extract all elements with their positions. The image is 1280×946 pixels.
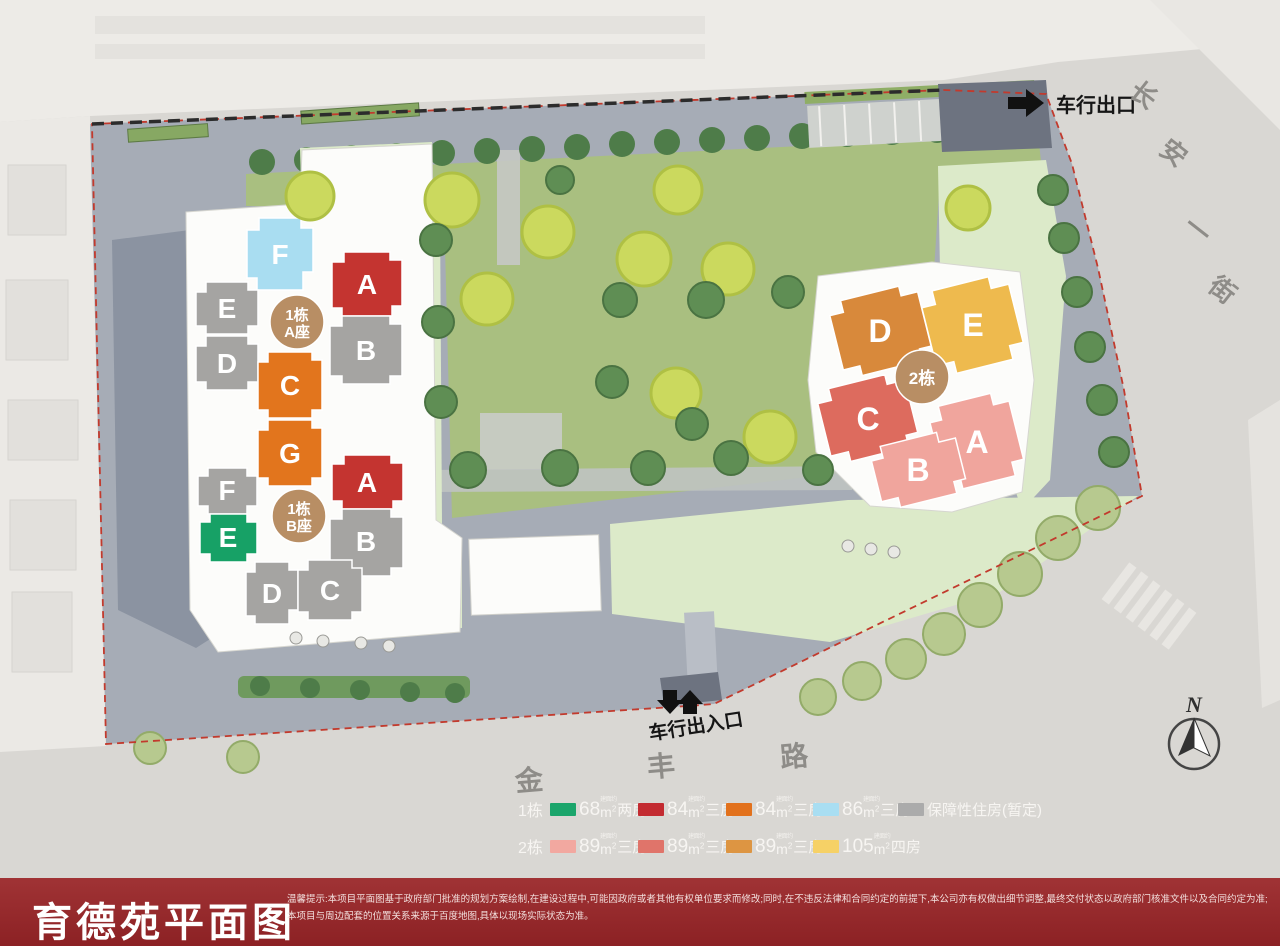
site-plan-page: { "map": { "exit_label": "车行出口", "entran… xyxy=(0,0,1280,946)
legend-swatch-icon xyxy=(638,840,664,853)
svg-text:金: 金 xyxy=(513,763,546,797)
building-1a-C-label: C xyxy=(280,370,300,401)
legend-item: 89 建面约m2 三房 xyxy=(638,836,726,857)
legend-swatch-icon xyxy=(726,803,752,816)
building-1a-E-label: E xyxy=(218,293,237,324)
building-2-E-label: E xyxy=(962,307,983,343)
building-1b-C-label: C xyxy=(320,575,340,606)
legend-swatch-icon xyxy=(813,803,839,816)
svg-text:1栋: 1栋 xyxy=(287,500,310,518)
legend-item: 68 建面约m2 两房 xyxy=(550,799,638,820)
building-2-C-label: C xyxy=(856,401,879,437)
legend-row-tower1: 1栋 68 建面约m2 两房 84 建面约m2 三房 84 建面约m2 三房 8… xyxy=(518,796,1042,822)
legend-item: 89 建面约m2 三房 xyxy=(726,836,813,857)
vehicle-exit-drive xyxy=(938,80,1052,152)
building-1a-A-label: A xyxy=(357,269,377,300)
tower1a-badge: 1栋 A座 xyxy=(270,295,324,349)
building-1a-B-label: B xyxy=(356,335,376,366)
legend-swatch-icon xyxy=(898,803,924,816)
building-2-D-label: D xyxy=(868,313,891,349)
building-2-A-label: A xyxy=(965,424,988,460)
disclaimer-text: 温馨提示:本项目平面图基于政府部门批准的规划方案绘制,在建设过程中,可能因政府或… xyxy=(287,892,1272,925)
legend-row-tower2: 2栋 89 建面约m2 三房 89 建面约m2 三房 89 建面约m2 三房 1… xyxy=(518,833,1042,859)
building-1a-D-label: D xyxy=(217,348,237,379)
tower1b-badge: 1栋 B座 xyxy=(272,489,326,543)
building-1b-B-label: B xyxy=(356,526,376,557)
exit-label: 车行出口 xyxy=(1056,93,1136,117)
legend-item: 84 建面约m2 三房 xyxy=(638,799,726,820)
svg-text:2栋: 2栋 xyxy=(909,368,935,388)
legend-swatch-icon xyxy=(638,803,664,816)
legend-item: 105 建面约m2 四房 xyxy=(813,836,898,857)
svg-text:A座: A座 xyxy=(284,323,310,341)
tower2-badge: 2栋 xyxy=(895,350,949,404)
legend-building-label: 2栋 xyxy=(518,834,550,858)
legend-item: 86 建面约m2 三房 xyxy=(813,799,898,820)
legend-swatch-icon xyxy=(550,803,576,816)
footer-band: 育德苑平面图 温馨提示:本项目平面图基于政府部门批准的规划方案绘制,在建设过程中… xyxy=(0,878,1280,946)
building-2-B-label: B xyxy=(906,452,929,488)
building-1b-D-label: D xyxy=(262,578,282,609)
building-1a-G-label: G xyxy=(279,438,301,469)
legend: 1栋 68 建面约m2 两房 84 建面约m2 三房 84 建面约m2 三房 8… xyxy=(518,796,1042,870)
building-1a-F-label: F xyxy=(271,239,288,270)
svg-text:路: 路 xyxy=(779,740,811,773)
legend-swatch-icon xyxy=(726,840,752,853)
site-plan-map: F E D A B C G F E A B D C D E C A B 1栋 A… xyxy=(0,0,1280,878)
legend-item: 84 建面约m2 三房 xyxy=(726,799,813,820)
building-1b-F-label: F xyxy=(218,475,235,506)
svg-text:1栋: 1栋 xyxy=(285,306,308,324)
building-1b-E-label: E xyxy=(219,522,238,553)
building-1b-A-label: A xyxy=(357,467,377,498)
svg-text:B座: B座 xyxy=(286,517,312,535)
legend-item: 89 建面约m2 三房 xyxy=(550,836,638,857)
legend-item-affordable-housing: 保障性住房(暂定) xyxy=(898,799,1042,820)
svg-text:丰: 丰 xyxy=(646,750,677,783)
legend-swatch-icon xyxy=(550,840,576,853)
legend-swatch-icon xyxy=(813,840,839,853)
page-title: 育德苑平面图 xyxy=(32,890,296,946)
compass-n-label: N xyxy=(1185,692,1203,717)
legend-building-label: 1栋 xyxy=(518,797,550,821)
